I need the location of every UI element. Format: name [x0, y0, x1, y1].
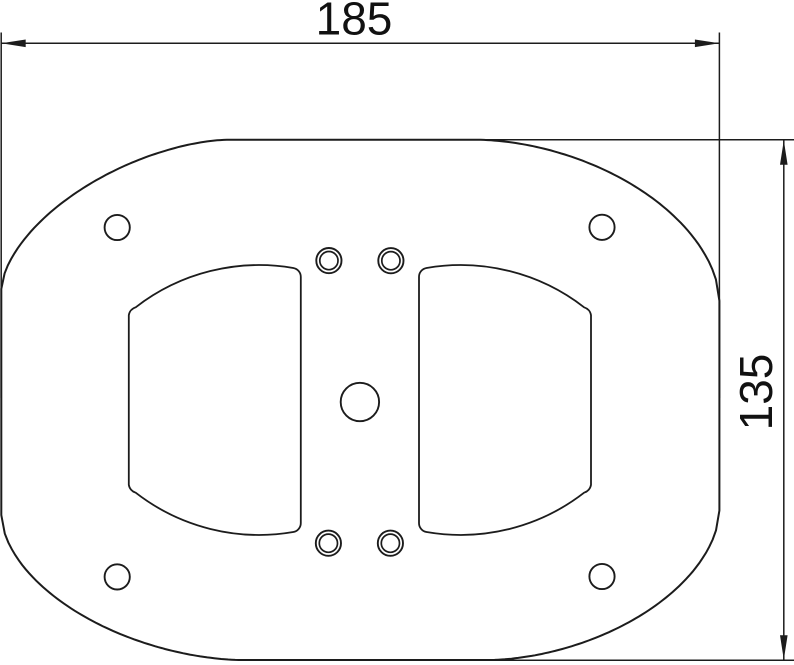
- svg-text:185: 185: [316, 0, 393, 45]
- svg-text:135: 135: [730, 354, 782, 431]
